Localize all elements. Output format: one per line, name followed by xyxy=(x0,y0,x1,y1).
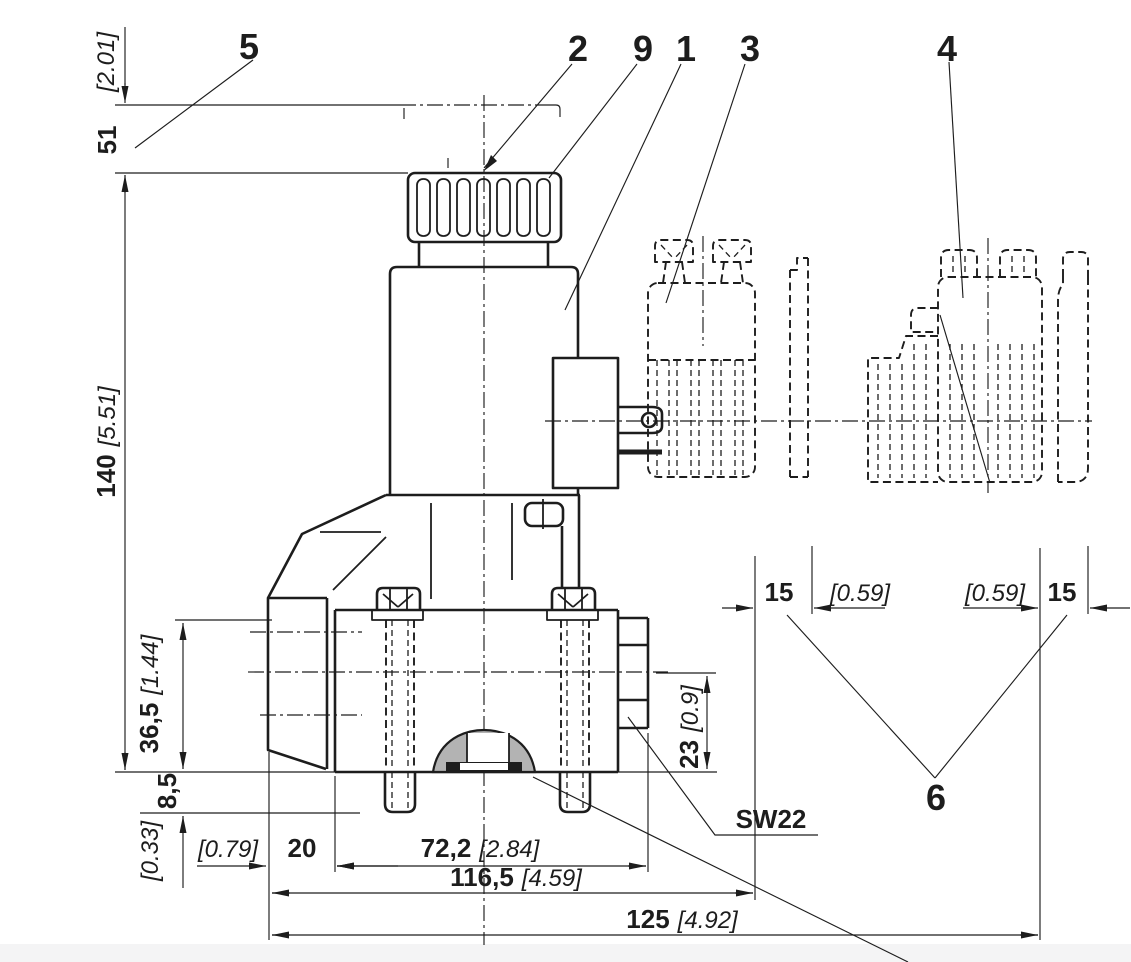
valve-dimension-drawing: 5 2 9 1 3 4 6 [2.01] 51 140[5.51] 36,5[1… xyxy=(0,0,1131,962)
dim-116-5-inch: [4.59] xyxy=(521,865,583,892)
dim-140: 140[5.51] xyxy=(91,385,121,498)
dim-72-2-inch: [2.84] xyxy=(478,836,540,863)
callout-1: 1 xyxy=(676,28,696,69)
dim-72-2-mm: 72,2 xyxy=(421,833,472,863)
dim-36-5-mm: 36,5 xyxy=(134,703,164,754)
dim-125: 125[4.92] xyxy=(626,904,739,934)
dim-72-2: 72,2[2.84] xyxy=(421,833,541,863)
callout-9: 9 xyxy=(633,28,653,69)
solenoid-tube-body xyxy=(386,267,580,495)
callout-5: 5 xyxy=(239,26,259,67)
connector-plug-variant-a xyxy=(648,240,808,477)
dim-140-mm: 140 xyxy=(91,454,121,497)
page-margin xyxy=(0,944,1131,962)
dim-15-left-mm: 15 xyxy=(765,577,794,607)
dim-8-5-inch: [0.33] xyxy=(137,820,164,882)
connector-socket xyxy=(553,358,662,488)
drawing-canvas: 5 2 9 1 3 4 6 [2.01] 51 140[5.51] 36,5[1… xyxy=(0,0,1131,962)
wrench-size-label: SW22 xyxy=(736,804,807,834)
dim-36-5-inch: [1.44] xyxy=(137,633,164,695)
dim-23: 23[0.9] xyxy=(674,684,704,769)
dim-51-inch: [2.01] xyxy=(93,31,120,93)
callout-4: 4 xyxy=(937,28,957,69)
leader-lines xyxy=(135,60,1067,962)
dim-15-right-inch: [0.59] xyxy=(964,580,1026,607)
callout-6: 6 xyxy=(926,777,946,818)
dimension-lines xyxy=(115,27,1130,940)
dim-36-5: 36,5[1.44] xyxy=(134,633,164,753)
dim-116-5-mm: 116,5 xyxy=(450,862,514,892)
dim-15-left-inch: [0.59] xyxy=(829,580,891,607)
dim-23-mm: 23 xyxy=(674,740,704,769)
seal-seat xyxy=(433,730,535,772)
dim-140-inch: [5.51] xyxy=(94,385,121,447)
dim-8-5-mm: 8,5 xyxy=(152,773,182,809)
dim-15-right-mm: 15 xyxy=(1048,577,1077,607)
callout-labels: 5 2 9 1 3 4 6 xyxy=(239,26,957,818)
hex-port-sw22 xyxy=(618,618,648,728)
dim-125-mm: 125 xyxy=(626,904,669,934)
dim-125-inch: [4.92] xyxy=(677,907,739,934)
center-lines xyxy=(248,95,1092,945)
callout-3: 3 xyxy=(740,28,760,69)
connector-plug-variant-b xyxy=(868,250,1088,482)
dim-23-inch: [0.9] xyxy=(677,684,704,733)
dim-20-mm: 20 xyxy=(288,833,317,863)
callout-2: 2 xyxy=(568,28,588,69)
mounting-bolt-left xyxy=(372,588,423,812)
mounting-bolt-right xyxy=(547,588,598,812)
dim-20-inch: [0.79] xyxy=(197,836,259,863)
dim-51-mm: 51 xyxy=(92,126,122,155)
